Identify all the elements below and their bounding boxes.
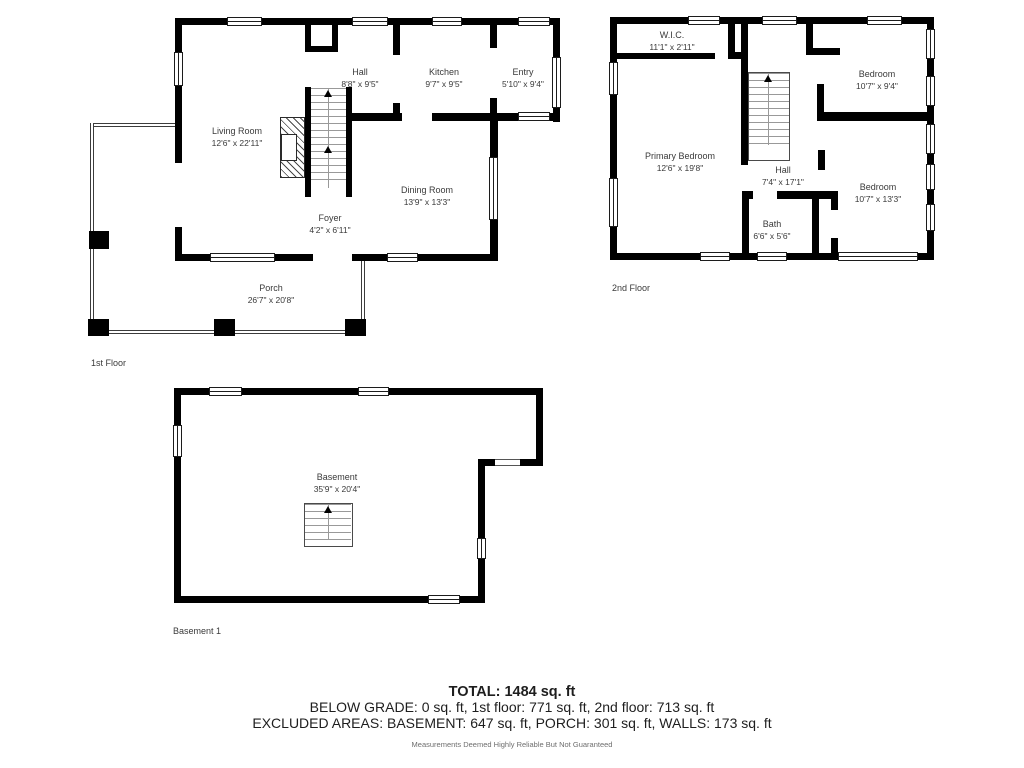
- room-name: Kitchen: [425, 66, 462, 79]
- floor-label-1st: 1st Floor: [91, 358, 126, 368]
- wall-segment: [617, 53, 715, 59]
- room-name: Hall: [762, 164, 804, 177]
- window: [762, 16, 797, 25]
- room-label-dining-room: Dining Room 13'9" x 13'3": [401, 184, 453, 208]
- room-dims: 26'7" x 20'8": [248, 295, 295, 306]
- room-dims: 13'9" x 13'3": [401, 197, 453, 208]
- wall-segment: [818, 150, 825, 170]
- room-dims: 12'6" x 22'11": [212, 138, 263, 149]
- window: [838, 252, 918, 261]
- window: [387, 253, 418, 262]
- wall-segment: [817, 112, 934, 121]
- room-name: Dining Room: [401, 184, 453, 197]
- area-summary: TOTAL: 1484 sq. ft BELOW GRADE: 0 sq. ft…: [0, 684, 1024, 749]
- door-opening: [495, 459, 520, 466]
- door-opening: [313, 254, 352, 261]
- room-name: Hall: [341, 66, 378, 79]
- room-dims: 7'4" x 17'1": [762, 177, 804, 188]
- door-opening: [402, 113, 432, 121]
- door-opening: [490, 48, 497, 98]
- room-label-bedroom-top: Bedroom 10'7" x 9'4": [856, 68, 898, 92]
- door-opening: [753, 191, 777, 199]
- wall-segment: [478, 459, 485, 603]
- window: [173, 425, 182, 457]
- room-name: Living Room: [212, 125, 263, 138]
- room-name: Primary Bedroom: [645, 150, 715, 163]
- window: [477, 538, 486, 559]
- window: [688, 16, 720, 25]
- room-label-bath: Bath 6'6" x 5'6": [753, 218, 790, 242]
- porch-rail: [90, 123, 175, 127]
- room-dims: 4'2" x 6'11": [309, 225, 350, 236]
- door-opening: [393, 55, 400, 103]
- window: [926, 164, 935, 190]
- wall-segment: [332, 25, 338, 52]
- window: [518, 112, 550, 121]
- porch-post: [345, 319, 366, 336]
- room-label-living-room: Living Room 12'6" x 22'11": [212, 125, 263, 149]
- room-name: Bath: [753, 218, 790, 231]
- door-opening: [175, 163, 182, 227]
- window: [227, 17, 262, 26]
- floor-label-basement: Basement 1: [173, 626, 221, 636]
- room-dims: 6'6" x 5'6": [753, 231, 790, 242]
- porch-post: [214, 319, 235, 336]
- window: [432, 17, 462, 26]
- room-label-entry: Entry 5'10" x 9'4": [502, 66, 544, 90]
- room-label-basement: Basement 35'9" x 20'4": [314, 471, 361, 495]
- window: [428, 595, 460, 604]
- up-arrow-icon: [764, 75, 772, 82]
- room-dims: 8'8" x 9'5": [341, 79, 378, 90]
- fireplace-firebox: [281, 134, 297, 161]
- porch-rail: [90, 123, 94, 335]
- window: [352, 17, 388, 26]
- stair-direction-line: [328, 88, 329, 188]
- window: [926, 204, 935, 231]
- wall-segment: [536, 388, 543, 466]
- room-dims: 11'1" x 2'11": [649, 42, 694, 53]
- room-name: Porch: [248, 282, 295, 295]
- below-grade-text: BELOW GRADE: 0 sq. ft, 1st floor: 771 sq…: [0, 700, 1024, 716]
- room-label-kitchen: Kitchen 9'7" x 9'5": [425, 66, 462, 90]
- room-name: W.I.C.: [649, 29, 694, 42]
- room-dims: 5'10" x 9'4": [502, 79, 544, 90]
- room-name: Entry: [502, 66, 544, 79]
- floor-label-2nd: 2nd Floor: [612, 283, 650, 293]
- window: [518, 17, 550, 26]
- window: [489, 157, 498, 220]
- window: [926, 76, 935, 106]
- stair-direction-line: [768, 73, 769, 145]
- room-label-hall-2nd: Hall 7'4" x 17'1": [762, 164, 804, 188]
- room-name: Bedroom: [855, 181, 902, 194]
- window: [209, 387, 242, 396]
- room-label-wic: W.I.C. 11'1" x 2'11": [649, 29, 694, 53]
- wall-segment: [819, 191, 838, 199]
- staircase: [749, 73, 789, 147]
- up-arrow-icon: [324, 90, 332, 97]
- room-label-hall: Hall 8'8" x 9'5": [341, 66, 378, 90]
- window: [609, 62, 618, 95]
- window: [867, 16, 902, 25]
- window: [609, 178, 618, 227]
- window: [552, 57, 561, 108]
- wall-segment: [741, 17, 748, 165]
- wall-segment: [806, 48, 840, 55]
- wall-segment: [812, 191, 819, 260]
- excluded-areas-text: EXCLUDED AREAS: BASEMENT: 647 sq. ft, PO…: [0, 716, 1024, 732]
- up-arrow-icon: [324, 146, 332, 153]
- door-opening: [831, 210, 838, 238]
- wall-segment: [728, 24, 735, 59]
- window: [700, 252, 730, 261]
- disclaimer-text: Measurements Deemed Highly Reliable But …: [0, 740, 1024, 749]
- wall-segment: [742, 191, 749, 260]
- window: [926, 29, 935, 59]
- stair-rail: [346, 87, 352, 197]
- window: [757, 252, 787, 261]
- room-dims: 9'7" x 9'5": [425, 79, 462, 90]
- window: [174, 52, 183, 86]
- room-label-foyer: Foyer 4'2" x 6'11": [309, 212, 350, 236]
- room-name: Bedroom: [856, 68, 898, 81]
- window: [210, 253, 275, 262]
- floorplan-canvas: Living Room 12'6" x 22'11" Hall 8'8" x 9…: [0, 0, 1024, 768]
- window: [926, 124, 935, 154]
- room-name: Foyer: [309, 212, 350, 225]
- room-dims: 35'9" x 20'4": [314, 484, 361, 495]
- room-label-bedroom-bottom: Bedroom 10'7" x 13'3": [855, 181, 902, 205]
- room-dims: 10'7" x 9'4": [856, 81, 898, 92]
- total-area-text: TOTAL: 1484 sq. ft: [0, 684, 1024, 700]
- window: [358, 387, 389, 396]
- wall-segment: [174, 388, 181, 603]
- room-label-primary-bedroom: Primary Bedroom 12'6" x 19'8": [645, 150, 715, 174]
- room-dims: 12'6" x 19'8": [645, 163, 715, 174]
- porch-post: [89, 231, 109, 249]
- room-dims: 10'7" x 13'3": [855, 194, 902, 205]
- porch-post: [88, 319, 109, 336]
- up-arrow-icon: [324, 506, 332, 513]
- room-label-porch: Porch 26'7" x 20'8": [248, 282, 295, 306]
- room-name: Basement: [314, 471, 361, 484]
